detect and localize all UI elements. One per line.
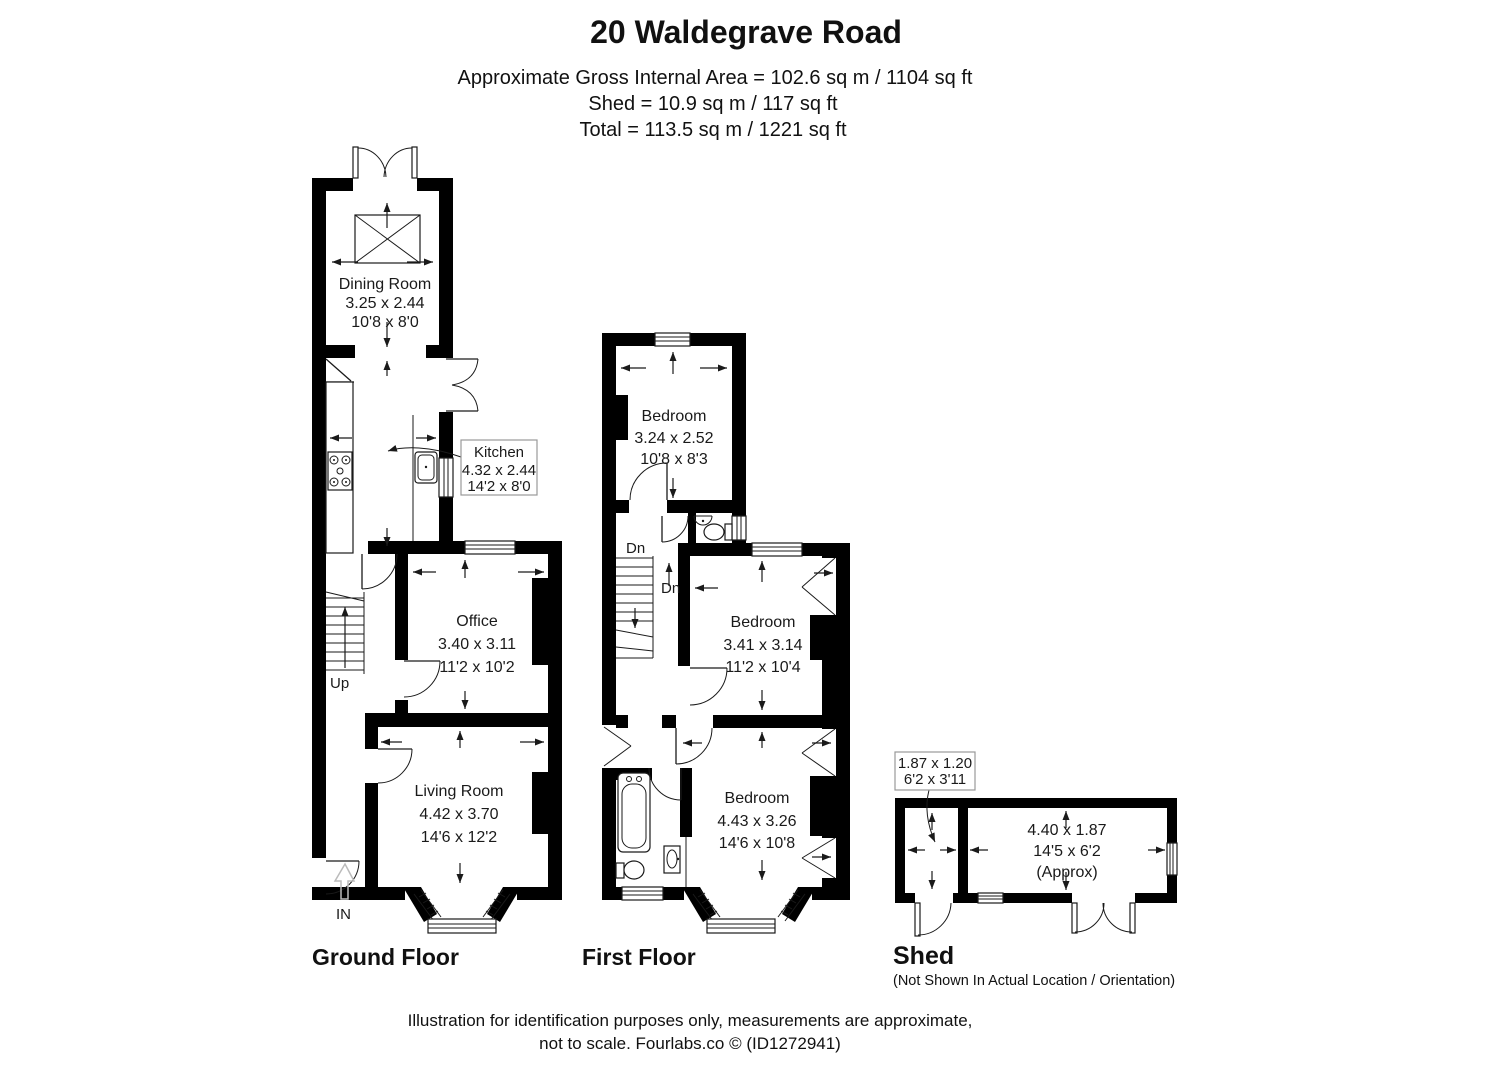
shed-room-labels: 4.40 x 1.87 14'5 x 6'2 (Approx) (1027, 822, 1106, 881)
shed-main-label-imperial: 14'5 x 6'2 (1033, 843, 1101, 860)
ground-floor-title: Ground Floor (312, 944, 459, 970)
living-room-label-name: Living Room (415, 783, 504, 800)
office-label-name: Office (456, 613, 498, 630)
kitchen-callout: Kitchen 4.32 x 2.44 14'2 x 8'0 (388, 440, 537, 495)
kitchen-label-name: Kitchen (474, 444, 524, 461)
shed-plan: 1.87 x 1.20 6'2 x 3'11 4.40 x 1.87 14'5 … (893, 752, 1177, 989)
stairs-dn-label-lower: Dn (661, 580, 680, 597)
bathroom-toilet-icon (616, 861, 644, 879)
shed-main-label-metric: 4.40 x 1.87 (1027, 822, 1106, 839)
living-room-bay-window (403, 887, 521, 933)
dining-room-label-name: Dining Room (339, 276, 431, 293)
bedroom-middle-label-name: Bedroom (731, 614, 796, 631)
bathroom-fixtures (616, 773, 680, 879)
bathroom-basin-icon (664, 846, 680, 873)
shed-doors (915, 903, 1135, 936)
disclaimer-line-2: not to scale. Fourlabs.co © (ID1272941) (539, 1034, 841, 1054)
floorplan-canvas: Kitchen 4.32 x 2.44 14'2 x 8'0 Dining Ro… (0, 0, 1489, 1080)
wc-basin-icon (694, 516, 712, 525)
bedroom-top-label-metric: 3.24 x 2.52 (634, 430, 713, 447)
bedroom-middle-label-metric: 3.41 x 3.14 (723, 637, 802, 654)
wc-toilet-icon (704, 524, 732, 540)
office-label-metric: 3.40 x 3.11 (438, 636, 516, 653)
bedroom-bottom-label-name: Bedroom (725, 790, 790, 807)
first-floor-stairs (616, 556, 669, 658)
kitchen-fixtures (326, 382, 437, 553)
living-room-label-imperial: 14'6 x 12'2 (421, 829, 497, 846)
first-floor-title: First Floor (582, 944, 696, 970)
stairs-dn-label-upper: Dn (626, 540, 645, 557)
kitchen-label-metric: 4.32 x 2.44 (462, 462, 536, 479)
bedroom-top-label-name: Bedroom (642, 408, 707, 425)
bedroom-bottom-label-metric: 4.43 x 3.26 (717, 813, 796, 830)
kitchen-label-imperial: 14'2 x 8'0 (467, 478, 530, 495)
sink-icon (415, 452, 437, 483)
shed-note: (Not Shown In Actual Location / Orientat… (893, 973, 1175, 989)
wc-fixtures (694, 516, 732, 540)
ground-floor-stairs (326, 592, 364, 674)
entrance-in-label: IN (336, 906, 351, 923)
shed-store-label-metric: 1.87 x 1.20 (898, 755, 972, 772)
bedroom-middle-label-imperial: 11'2 x 10'4 (725, 659, 800, 676)
disclaimer-line-1: Illustration for identification purposes… (408, 1011, 973, 1031)
dining-room-label-imperial: 10'8 x 8'0 (351, 314, 419, 331)
living-room-label-metric: 4.42 x 3.70 (419, 806, 498, 823)
bedroom-bottom-label-imperial: 14'6 x 10'8 (719, 835, 795, 852)
shed-title: Shed (893, 942, 954, 970)
shed-store-label-imperial: 6'2 x 3'11 (904, 771, 966, 788)
ground-floor-plan: Kitchen 4.32 x 2.44 14'2 x 8'0 Dining Ro… (312, 147, 562, 970)
bathtub-icon (618, 773, 650, 852)
office-label-imperial: 11'2 x 10'2 (439, 659, 514, 676)
first-floor-plan: Bedroom 3.24 x 2.52 10'8 x 8'3 Bedroom 3… (582, 333, 850, 970)
bedroom-top-label-imperial: 10'8 x 8'3 (640, 451, 708, 468)
dining-room-label-metric: 3.25 x 2.44 (345, 295, 424, 312)
shed-main-label-qualifier: (Approx) (1036, 864, 1097, 881)
bedroom-bay-window (682, 887, 816, 933)
stairs-up-label: Up (330, 675, 349, 692)
